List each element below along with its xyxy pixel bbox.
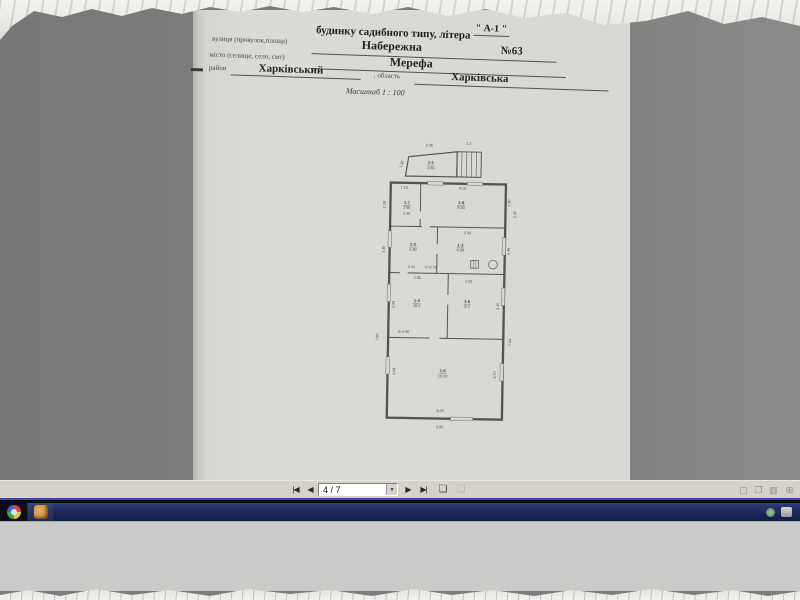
svg-text:3.44: 3.44 [391,301,395,308]
scanned-document-page: будинку садибного типу, літера " А-1 " в… [193,10,630,480]
tray-status-gray-icon[interactable] [781,507,792,517]
page-indicator: 4 / 7 [319,485,386,495]
next-page-button[interactable]: ▶ [402,483,414,496]
svg-text:19.50: 19.50 [438,373,448,378]
svg-text:7.60: 7.60 [375,334,379,341]
stairs [457,152,482,178]
svg-text:4.15: 4.15 [459,187,466,191]
svg-text:6.30: 6.30 [457,247,465,252]
svg-text:3.08: 3.08 [392,368,396,375]
plan-windows [385,181,507,422]
facing-pages-view-icon[interactable]: ❐ [752,484,765,496]
last-page-button[interactable]: ▶| [416,483,431,496]
region-label: , область [374,71,401,80]
svg-text:2.35: 2.35 [426,143,433,147]
viewer-canvas: будинку садибного типу, літера " А-1 " в… [0,0,800,480]
svg-text:2.80: 2.80 [507,199,511,206]
svg-text:2.40: 2.40 [513,211,517,218]
single-page-view-icon[interactable]: ▢ [737,484,750,496]
fit-width-icon[interactable]: ⊞ [783,484,796,496]
copy-page-icon: ❏ [454,483,468,496]
plan-walls [387,151,507,420]
svg-text:5.95: 5.95 [436,425,443,429]
prev-page-button[interactable]: ◀ [304,483,316,496]
svg-text:2.90: 2.90 [403,212,410,216]
viewer-toolbar: |◀ ◀ 4 / 7 ▼ ▶ ▶| ❏ ❏ ▢ ❐ ▥ ⊞ [0,480,800,498]
svg-text:2.35: 2.35 [382,246,386,253]
svg-text:8.2: 8.2 [464,304,469,309]
scale-note: Масштаб 1 : 100 [310,85,440,99]
svg-text:1.15: 1.15 [401,186,408,190]
bottom-desktop-band [0,521,800,591]
svg-text:h=2.90: h=2.90 [398,330,409,334]
svg-text:2.41: 2.41 [408,265,415,269]
svg-text:2.90: 2.90 [403,205,411,210]
svg-text:9.80: 9.80 [457,205,465,210]
street-value: Набережна [332,37,452,56]
svg-text:1.35: 1.35 [399,160,405,168]
browser-icon [7,505,21,519]
svg-text:5.90: 5.90 [409,247,417,252]
region-value: Харківська [424,70,536,86]
svg-text:2.80: 2.80 [427,165,435,170]
first-page-button[interactable]: |◀ [288,483,303,496]
svg-text:3.40: 3.40 [496,303,500,310]
district-label: район [209,64,227,73]
svg-text:1-1: 1-1 [428,160,435,165]
city-label: місто (селище, село, смт) [209,51,285,62]
page-indicator-combo[interactable]: 4 / 7 ▼ [318,483,398,496]
svg-text:2.46: 2.46 [507,248,511,255]
margin-mark [191,68,203,71]
image-viewer-icon [34,505,48,519]
taskbar-app-viewer[interactable] [28,503,53,521]
svg-text:3.70: 3.70 [493,371,497,378]
export-page-icon[interactable]: ❏ [436,483,450,496]
system-tray [766,503,792,521]
svg-text:1-6: 1-6 [440,368,447,373]
svg-text:h=2.75: h=2.75 [425,265,436,269]
screen: будинку садибного типу, літера " А-1 " в… [0,0,800,600]
floor-plan: 1-1 2.80 1-7 2.90 1-8 9.80 1-2 5.90 1-3 … [295,137,600,442]
svg-text:2.90: 2.90 [414,276,421,280]
svg-text:10.2: 10.2 [413,303,421,308]
svg-text:1.2: 1.2 [466,142,471,146]
svg-text:7.64: 7.64 [508,339,512,346]
street-label: вулиця (провулок,площа) [212,35,287,46]
chevron-down-icon[interactable]: ▼ [386,484,397,495]
taskbar-app-browser[interactable] [0,503,27,521]
svg-text:2.28: 2.28 [383,201,387,208]
document-header: будинку садибного типу, літера " А-1 " в… [189,10,630,135]
plan-fixtures [471,260,498,269]
building-letter: " А-1 " [473,23,509,37]
svg-text:3.29: 3.29 [465,280,472,284]
svg-text:2.93: 2.93 [464,231,471,235]
svg-text:5.29: 5.29 [436,409,443,413]
tray-status-green-icon[interactable] [766,508,775,517]
thumbnails-view-icon[interactable]: ▥ [767,484,780,496]
street-number: №63 [492,44,532,57]
taskbar [0,503,800,521]
